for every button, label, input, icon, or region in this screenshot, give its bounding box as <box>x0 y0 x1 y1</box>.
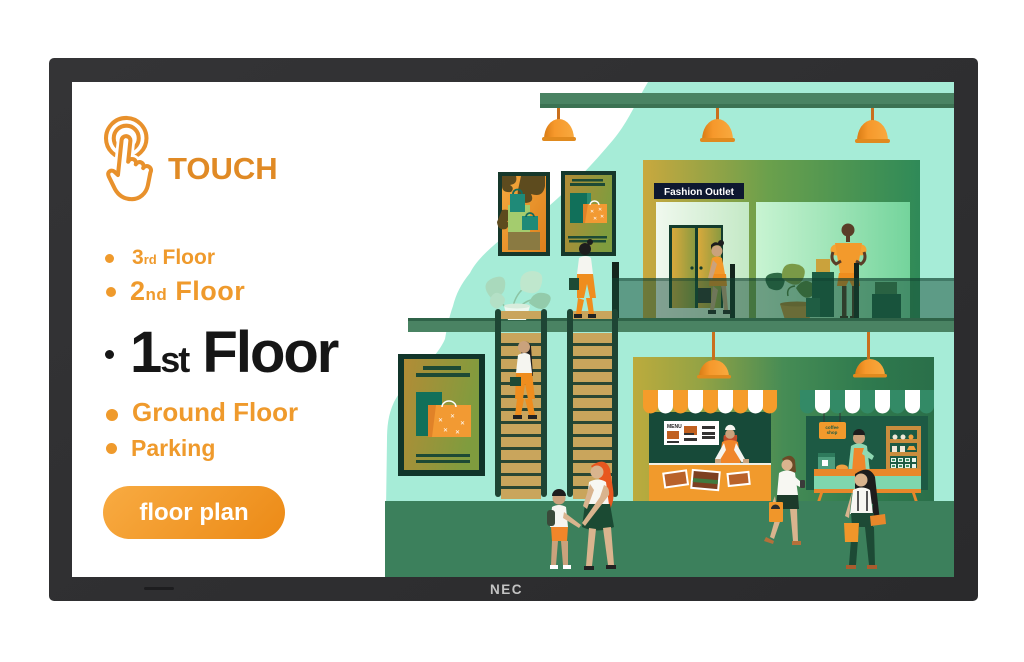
svg-text:✕: ✕ <box>593 216 597 222</box>
svg-text:✕: ✕ <box>600 214 604 220</box>
svg-text:MENU: MENU <box>667 424 682 430</box>
svg-text:✕: ✕ <box>460 421 465 427</box>
svg-text:✕: ✕ <box>438 418 443 424</box>
svg-text:✕: ✕ <box>455 430 460 436</box>
svg-text:✕: ✕ <box>598 207 602 213</box>
svg-text:Fashion Outlet: Fashion Outlet <box>664 187 735 198</box>
svg-text:shop: shop <box>827 430 838 435</box>
svg-text:✕: ✕ <box>450 414 455 420</box>
svg-text:✕: ✕ <box>443 428 448 434</box>
svg-text:✕: ✕ <box>590 209 594 215</box>
